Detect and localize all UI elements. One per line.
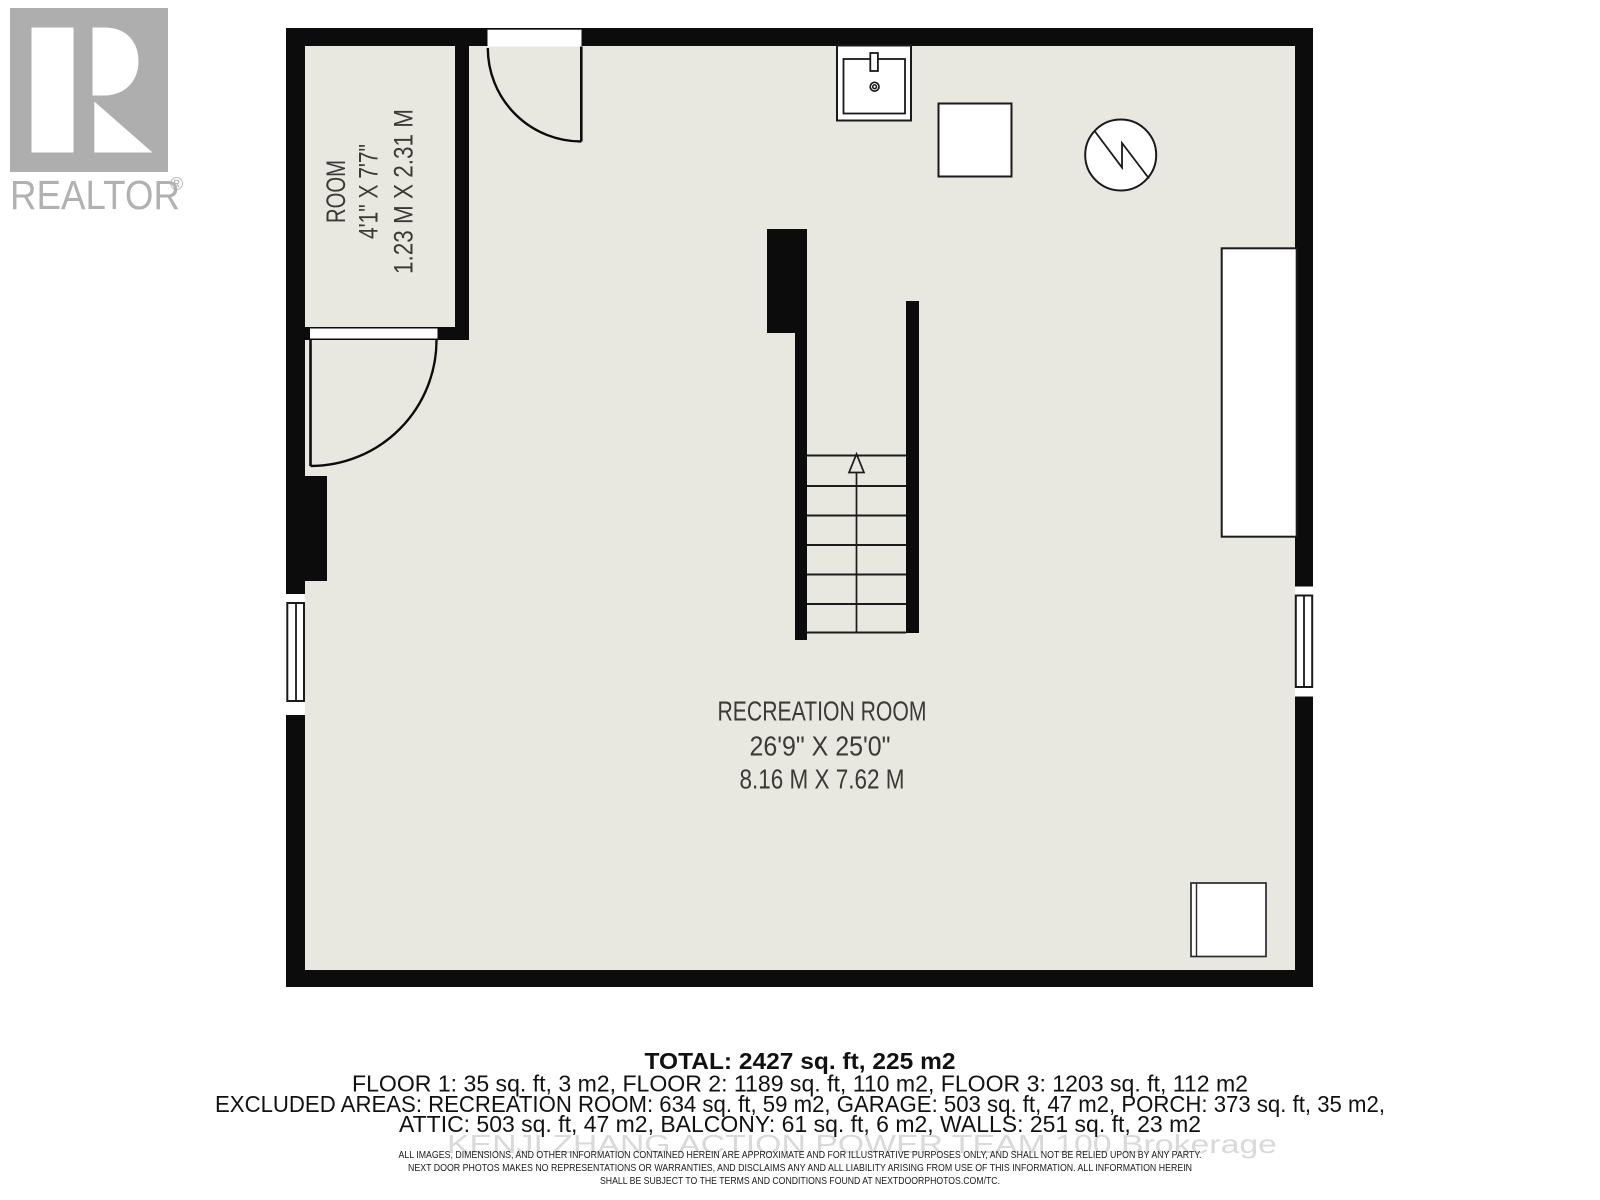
svg-text:8.16 M X 7.62 M: 8.16 M X 7.62 M [740,763,905,794]
svg-text:ALL IMAGES, DIMENSIONS, AND OT: ALL IMAGES, DIMENSIONS, AND OTHER INFORM… [399,1149,1202,1161]
svg-text:ATTIC: 503 sq. ft, 47 m2, BALC: ATTIC: 503 sq. ft, 47 m2, BALCONY: 61 sq… [399,1111,1201,1137]
svg-text:26'9" X 25'0": 26'9" X 25'0" [750,731,891,762]
svg-text:RECREATION ROOM: RECREATION ROOM [718,696,927,727]
svg-text:NEXT DOOR PHOTOS MAKES NO REPR: NEXT DOOR PHOTOS MAKES NO REPRESENTATION… [408,1162,1192,1174]
svg-text:REALTOR: REALTOR [10,172,180,218]
svg-text:®: ® [170,174,183,194]
svg-text:SHALL BE SUBJECT TO THE TERMS: SHALL BE SUBJECT TO THE TERMS AND CONDIT… [600,1175,1000,1187]
svg-text:1.23 M X 2.31 M: 1.23 M X 2.31 M [389,109,419,274]
svg-text:ROOM: ROOM [321,160,351,223]
svg-text:4'1" X 7'7": 4'1" X 7'7" [354,144,384,239]
